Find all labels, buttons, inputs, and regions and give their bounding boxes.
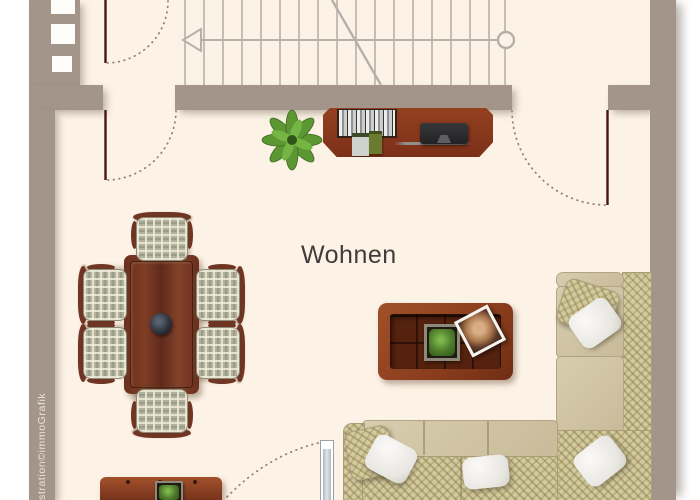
lowboard-planter	[155, 481, 183, 500]
dining-chair-left-2	[83, 327, 127, 379]
sofa-pillow-white-middle	[461, 454, 510, 491]
room-label: Wohnen	[301, 241, 397, 270]
staircase	[185, 0, 514, 85]
lowboard-knob	[193, 480, 197, 484]
door-right-swing-arc	[512, 111, 607, 205]
watermark-credit: stration©immoGrafik	[36, 393, 48, 500]
potted-plant-icon	[262, 110, 322, 170]
coffee-table-planter	[424, 324, 460, 361]
stair-newel-circle	[498, 32, 514, 48]
terrace-door-panel	[320, 440, 334, 500]
dining-chair-right-1	[196, 269, 240, 321]
sofa-seam	[423, 421, 425, 455]
terrace-door-swing-arc	[225, 443, 318, 499]
dining-chair-bottom	[136, 389, 188, 433]
dining-chair-right-2	[196, 327, 240, 379]
lowboard	[100, 477, 222, 500]
sofa-seam	[487, 421, 489, 455]
dining-chair-left-1	[83, 269, 127, 321]
floorplan-canvas: Wohnen stration©immoGrafik	[0, 0, 700, 500]
planter-box-gray	[352, 133, 369, 156]
door-top-left-swing-arc	[106, 1, 168, 63]
lowboard-knob	[126, 480, 130, 484]
dining-table	[124, 255, 199, 394]
sofa-seat-right-2	[556, 356, 624, 432]
door-left-swing-arc	[106, 111, 176, 180]
dining-chair-top	[136, 217, 188, 261]
tv-sideboard	[323, 108, 493, 157]
planter-box-olive	[369, 131, 382, 154]
coffee-table	[378, 303, 513, 380]
table-centerpiece	[150, 313, 172, 335]
tv-icon	[420, 123, 468, 144]
